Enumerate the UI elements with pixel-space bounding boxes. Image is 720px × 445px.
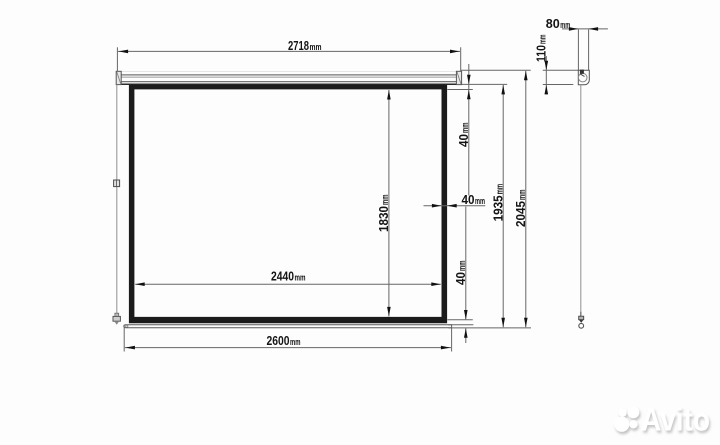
svg-text:80: 80 (546, 16, 560, 31)
svg-text:40: 40 (462, 192, 475, 207)
svg-text:2440: 2440 (271, 269, 294, 284)
svg-text:2718: 2718 (288, 38, 309, 53)
svg-text:mm: mm (495, 184, 505, 195)
svg-text:mm: mm (310, 42, 322, 52)
svg-text:mm: mm (380, 195, 390, 206)
svg-text:Avito: Avito (641, 402, 710, 438)
svg-text:40: 40 (456, 134, 471, 147)
svg-text:1830: 1830 (376, 206, 391, 232)
svg-text:mm: mm (517, 190, 527, 201)
svg-text:mm: mm (475, 196, 485, 206)
svg-text:mm: mm (457, 261, 467, 272)
svg-text:mm: mm (290, 337, 301, 347)
svg-text:2045: 2045 (513, 201, 528, 227)
svg-text:40: 40 (453, 272, 468, 285)
svg-text:mm: mm (537, 35, 547, 45)
svg-text:mm: mm (295, 273, 306, 283)
svg-text:2600: 2600 (267, 333, 290, 348)
svg-text:1935: 1935 (491, 195, 506, 221)
svg-text:mm: mm (460, 123, 470, 134)
